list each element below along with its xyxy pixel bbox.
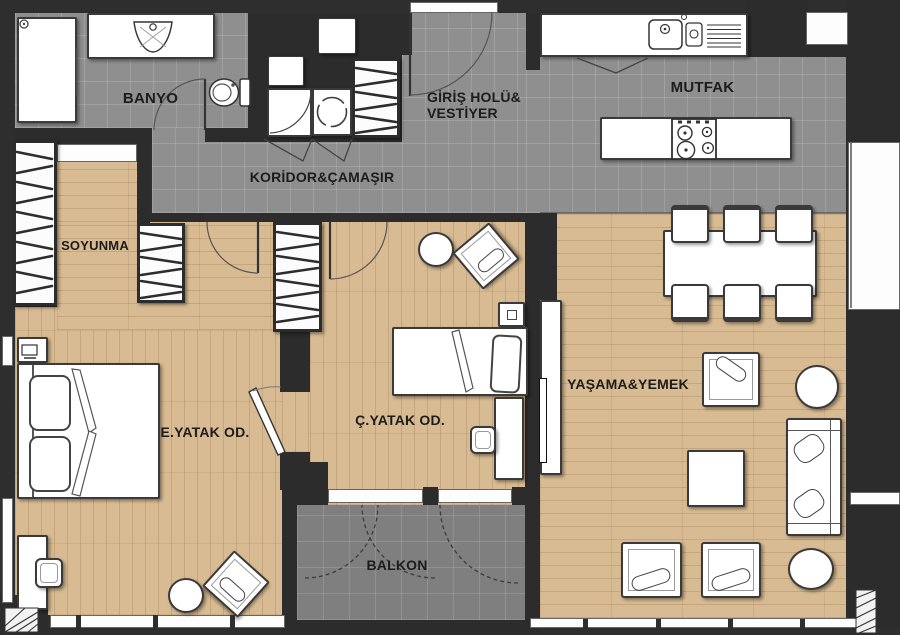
cushion <box>790 430 828 466</box>
room-label-mutfak: MUTFAK <box>660 79 745 96</box>
c-yatak-desk-chair <box>470 426 496 454</box>
living-armchair <box>702 352 760 407</box>
soyunma-floor <box>57 162 137 222</box>
coffee-table <box>687 450 745 507</box>
entry-door-opening <box>410 2 498 13</box>
pillow <box>29 436 71 492</box>
dining-chair <box>723 205 761 243</box>
dining-chair <box>671 284 709 322</box>
kitchen-counter <box>540 13 748 57</box>
laundry-cabinet-mid <box>268 56 304 86</box>
coat-wardrobe <box>352 58 400 138</box>
sofa-armrest <box>788 420 840 431</box>
nightstand-knob <box>507 310 517 320</box>
dining-chair <box>671 205 709 243</box>
shower <box>17 17 77 123</box>
wall-kitchen-top-sill <box>806 45 848 57</box>
living-armchair <box>701 542 761 598</box>
room-label-koridor: KORİDOR&ÇAMAŞIR <box>232 169 412 185</box>
room-label-c-yatak: Ç.YATAK OD. <box>350 412 450 428</box>
wall-balkon-post-2 <box>512 487 525 505</box>
single-bed <box>392 327 528 396</box>
wall-entry-side <box>400 13 412 55</box>
wall-right-mid-block <box>846 310 900 492</box>
dining-chair <box>723 284 761 322</box>
dining-window <box>848 142 900 310</box>
balkon-door-panel-1 <box>328 489 423 503</box>
e-yatak-stool <box>168 578 204 613</box>
pillow <box>29 375 71 431</box>
c-yatak-desk <box>494 397 524 480</box>
round-side-table <box>795 365 839 409</box>
room-label-yasama: YAŞAMA&YEMEK <box>555 376 701 392</box>
sofa-back <box>830 420 840 534</box>
wall-soyunma-side <box>137 140 150 223</box>
kitchen-island <box>600 117 792 160</box>
washbasin-counter <box>87 13 215 59</box>
wall-corridor-a <box>137 213 205 222</box>
wall-corridor-b <box>258 213 330 222</box>
tv <box>539 378 547 463</box>
soyunma-wardrobe-left <box>13 140 57 306</box>
room-label-balkon: BALKON <box>352 557 442 573</box>
pillow <box>490 334 523 393</box>
room-label-e-yatak: E.YATAK OD. <box>155 424 255 440</box>
wall-kitchen-divider <box>526 13 540 70</box>
room-label-giris-line1: GİRİŞ HOLÜ& <box>427 89 521 105</box>
floor-plan: BANYO GİRİŞ HOLÜ& VESTİYER MUTFAK KORİDO… <box>0 0 900 635</box>
washing-machine <box>312 88 352 136</box>
living-window-band <box>530 618 860 628</box>
kitchen-window <box>806 12 848 45</box>
chair-seat <box>40 563 58 583</box>
e-yatak-nightstand <box>17 337 48 363</box>
wall-bedrooms-upper <box>280 332 310 392</box>
living-side-window <box>850 492 900 505</box>
wall-corridor-c <box>390 213 540 222</box>
wall-living-left <box>525 213 540 635</box>
bedroom-window-band <box>50 615 285 628</box>
e-yatak-desk-chair <box>35 558 63 588</box>
bedroom-wardrobe <box>273 222 322 332</box>
wall-top-right-block <box>846 0 900 142</box>
wall-balkon-bottom <box>282 620 540 635</box>
balkon-door-panel-2 <box>438 489 512 503</box>
room-label-giris-line2: VESTİYER <box>427 105 498 121</box>
doorway-floor <box>282 392 310 452</box>
wall-living-column <box>540 213 557 300</box>
dining-chair <box>775 284 813 322</box>
round-pouf <box>788 548 834 590</box>
chair-seat <box>475 431 491 449</box>
cushion <box>790 485 828 521</box>
double-bed <box>17 363 160 499</box>
living-armchair <box>621 542 682 598</box>
wall-right-low-block <box>846 505 900 628</box>
room-label-soyunma: SOYUNMA <box>50 238 140 253</box>
wall-kitchen-top <box>746 0 808 57</box>
soyunma-shelf <box>57 144 137 162</box>
laundry-cabinet-upper <box>318 18 356 54</box>
dining-chair <box>775 205 813 243</box>
wall-balkon-left <box>282 490 297 630</box>
c-yatak-nightstand <box>498 302 525 327</box>
left-window-slit-1 <box>2 336 13 366</box>
c-yatak-pouf <box>418 232 454 267</box>
wall-balkon-post-1 <box>423 487 438 505</box>
laundry-base-cabinet <box>267 88 312 137</box>
soyunma-wardrobe-right <box>137 223 185 303</box>
sofa <box>786 418 842 536</box>
left-window-slit-2 <box>2 498 13 603</box>
wall-banyo-bottom-right <box>205 128 250 142</box>
room-label-banyo: BANYO <box>108 90 193 107</box>
sofa-armrest <box>788 523 840 534</box>
